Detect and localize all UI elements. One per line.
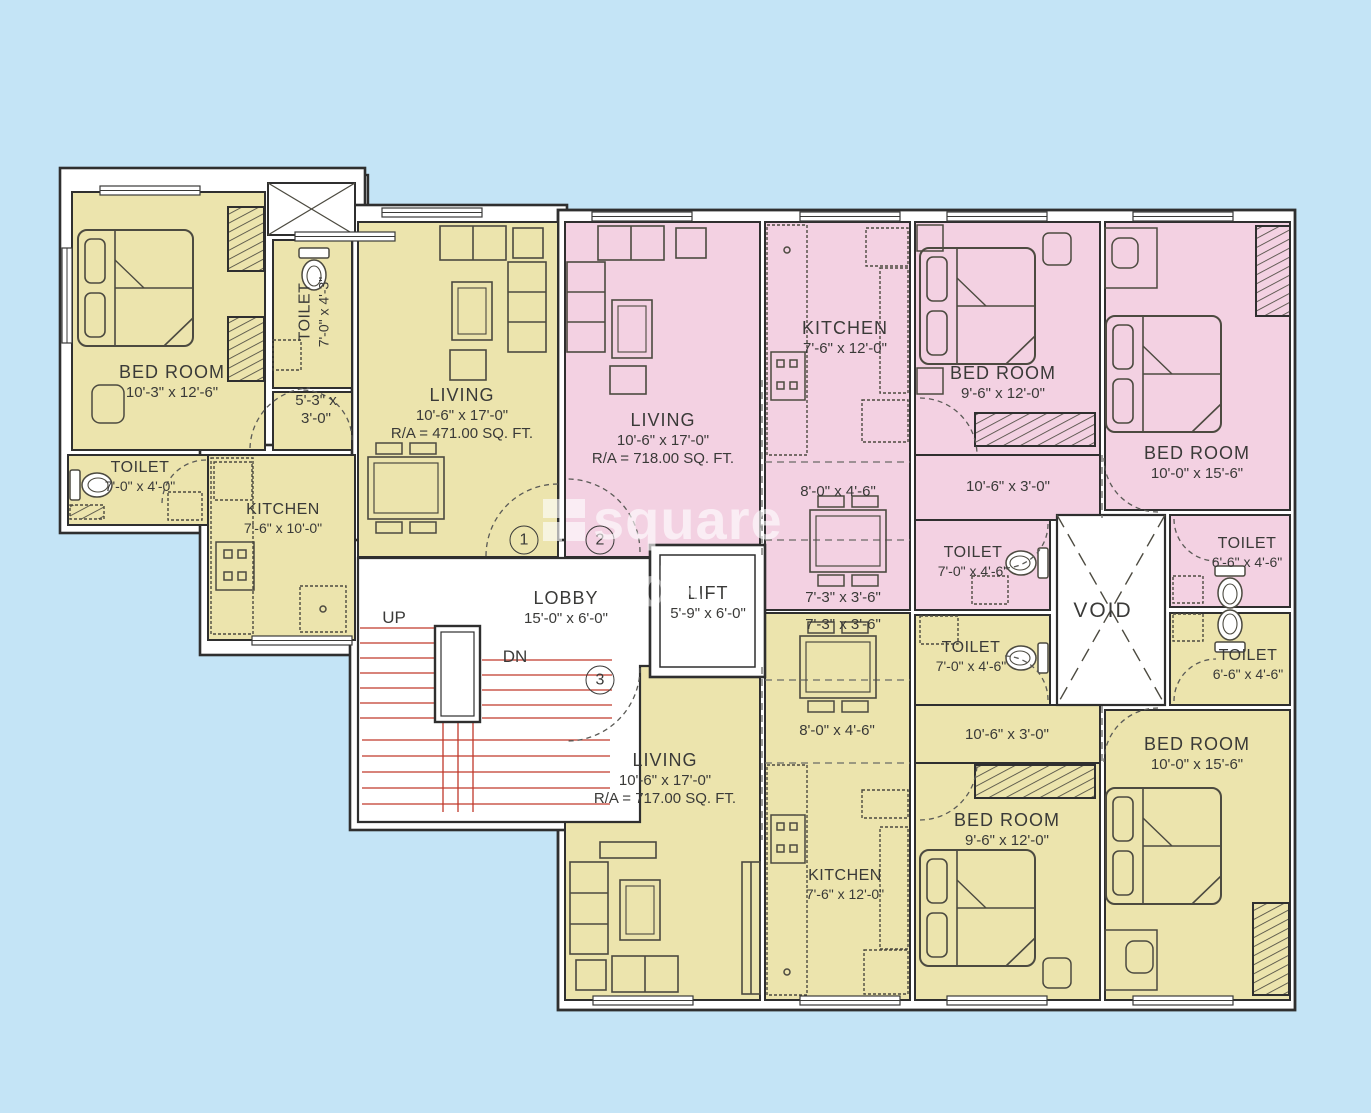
room-name: LIVING — [592, 410, 734, 432]
room-dims: 7'-3" x 3'-6" — [805, 616, 881, 634]
room-dims: 7'-6" x 12'-0" — [806, 886, 884, 903]
wc-icon — [1006, 548, 1048, 578]
room-dims: 10'-6" x 17'-0" — [391, 407, 533, 425]
room-label-void: VOID — [1073, 598, 1132, 624]
dims-label-passage-3: 10'-6" x 3'-0" — [965, 726, 1049, 744]
room-label-bedroom-3a: BED ROOM 9'-6" x 12'-0" — [954, 810, 1060, 850]
floor-plan-drawing — [0, 0, 1371, 1113]
room-name: BED ROOM — [1144, 734, 1250, 756]
room-label-living-1: LIVING 10'-6" x 17'-0" R/A = 471.00 SQ. … — [391, 385, 533, 444]
dims-label-dining-2b: 7'-3" x 3'-6" — [805, 589, 881, 607]
stairs-dn-label: DN — [503, 647, 528, 668]
room-dims: 7'-0" x 4'-6" — [938, 563, 1009, 580]
room-name: LOBBY — [524, 588, 608, 610]
room-dims: 9'-6" x 12'-0" — [954, 832, 1060, 850]
room-area: R/A = 717.00 SQ. FT. — [594, 790, 736, 808]
room-dims: 10'-6" x 17'-0" — [592, 432, 734, 450]
room-name: BED ROOM — [119, 362, 225, 384]
room-label-bedroom-2a: BED ROOM 9'-6" x 12'-0" — [950, 363, 1056, 403]
stair-landing — [435, 626, 480, 722]
room-dims: 10'-6" x 3'-0" — [966, 478, 1050, 496]
dn-text: DN — [503, 647, 528, 668]
room-dims: 15'-0" x 6'-0" — [524, 610, 608, 628]
floor-plan: BED ROOM 10'-3" x 12'-6" TOILET 7'-0" x … — [0, 0, 1371, 1113]
room-label-passage-1: 5'-3" x 3'-0" — [295, 392, 337, 429]
room-dims: 8'-0" x 4'-6" — [799, 722, 875, 740]
room-label-toilet-3a: TOILET 7'-0" x 4'-6" — [936, 638, 1007, 675]
room-dims: 9'-6" x 12'-0" — [950, 385, 1056, 403]
room-dims: 6'-6" x 4'-6" — [1213, 666, 1284, 683]
dims-label-passage-2: 10'-6" x 3'-0" — [966, 478, 1050, 496]
room-label-bedroom-1: BED ROOM 10'-3" x 12'-6" — [119, 362, 225, 402]
room-label-lift: LIFT 5'-9" x 6'-0" — [670, 583, 746, 623]
room-name: VOID — [1073, 598, 1132, 624]
room-dims: 10'-3" x 12'-6" — [119, 384, 225, 402]
room-dims: 3'-0" — [295, 410, 337, 428]
dims-label-dining-3b: 8'-0" x 4'-6" — [799, 722, 875, 740]
unit-3-badge: 3 — [586, 666, 615, 695]
dims-label-dining-2a: 8'-0" x 4'-6" — [800, 483, 876, 501]
room-name: TOILET — [938, 543, 1009, 563]
room-name: BED ROOM — [954, 810, 1060, 832]
room-name: LIFT — [670, 583, 746, 605]
room-name: BED ROOM — [950, 363, 1056, 385]
room-dims: 10'-0" x 15'-6" — [1144, 756, 1250, 774]
room-name: TOILET — [296, 277, 316, 348]
room-dims: 10'-6" x 3'-0" — [965, 726, 1049, 744]
room-label-bedroom-3b: BED ROOM 10'-0" x 15'-6" — [1144, 734, 1250, 774]
room-dims: 7'-0" x 4'-3" — [315, 277, 332, 348]
unit-2-badge: 2 — [586, 526, 615, 555]
room-label-living-2: LIVING 10'-6" x 17'-0" R/A = 718.00 SQ. … — [592, 410, 734, 469]
wc-icon — [1006, 643, 1048, 673]
room-dims: 7'-6" x 10'-0" — [244, 520, 322, 537]
room-label-living-3: LIVING 10'-6" x 17'-0" R/A = 717.00 SQ. … — [594, 750, 736, 809]
room-label-kitchen-3: KITCHEN 7'-6" x 12'-0" — [806, 866, 884, 903]
room-dims: 10'-0" x 15'-6" — [1144, 465, 1250, 483]
up-text: UP — [382, 608, 406, 629]
stairs-up-label: UP — [382, 608, 406, 629]
room-label-toilet-2a: TOILET 7'-0" x 4'-6" — [938, 543, 1009, 580]
room-name: KITCHEN — [802, 318, 888, 340]
room-name: KITCHEN — [244, 500, 322, 520]
room-dims: 5'-9" x 6'-0" — [670, 605, 746, 623]
room-label-toilet-1b: TOILET 7'-0" x 4'-0" — [105, 458, 176, 495]
room-name: BED ROOM — [1144, 443, 1250, 465]
wc-icon — [1215, 566, 1245, 608]
room-label-kitchen-1: KITCHEN 7'-6" x 10'-0" — [244, 500, 322, 537]
room-name: TOILET — [936, 638, 1007, 658]
room-label-kitchen-2: KITCHEN 7'-6" x 12'-0" — [802, 318, 888, 358]
room-name: LIVING — [391, 385, 533, 407]
room-dims: 7'-0" x 4'-0" — [105, 478, 176, 495]
room-dims: 7'-3" x 3'-6" — [805, 589, 881, 607]
room-name: TOILET — [1213, 646, 1284, 666]
room-dims: 8'-0" x 4'-6" — [800, 483, 876, 501]
room-name: KITCHEN — [806, 866, 884, 886]
dims-label-dining-3a: 7'-3" x 3'-6" — [805, 616, 881, 634]
unit-1-badge: 1 — [510, 526, 539, 555]
room-area: R/A = 718.00 SQ. FT. — [592, 450, 734, 468]
room-label-toilet-1a: TOILET 7'-0" x 4'-3" — [296, 277, 333, 348]
room-name: TOILET — [1212, 534, 1283, 554]
room-dims: 7'-0" x 4'-6" — [936, 658, 1007, 675]
room-dims: 5'-3" x — [295, 392, 337, 410]
room-name: LIVING — [594, 750, 736, 772]
room-dims: 6'-6" x 4'-6" — [1212, 554, 1283, 571]
room-area: R/A = 471.00 SQ. FT. — [391, 425, 533, 443]
room-name: TOILET — [105, 458, 176, 478]
room-label-toilet-2b: TOILET 6'-6" x 4'-6" — [1212, 534, 1283, 571]
room-dims: 7'-6" x 12'-0" — [802, 340, 888, 358]
duct-shaft — [268, 183, 355, 235]
room-label-bedroom-2b: BED ROOM 10'-0" x 15'-6" — [1144, 443, 1250, 483]
room-label-lobby: LOBBY 15'-0" x 6'-0" — [524, 588, 608, 628]
room-dims: 10'-6" x 17'-0" — [594, 772, 736, 790]
room-label-toilet-3b: TOILET 6'-6" x 4'-6" — [1213, 646, 1284, 683]
